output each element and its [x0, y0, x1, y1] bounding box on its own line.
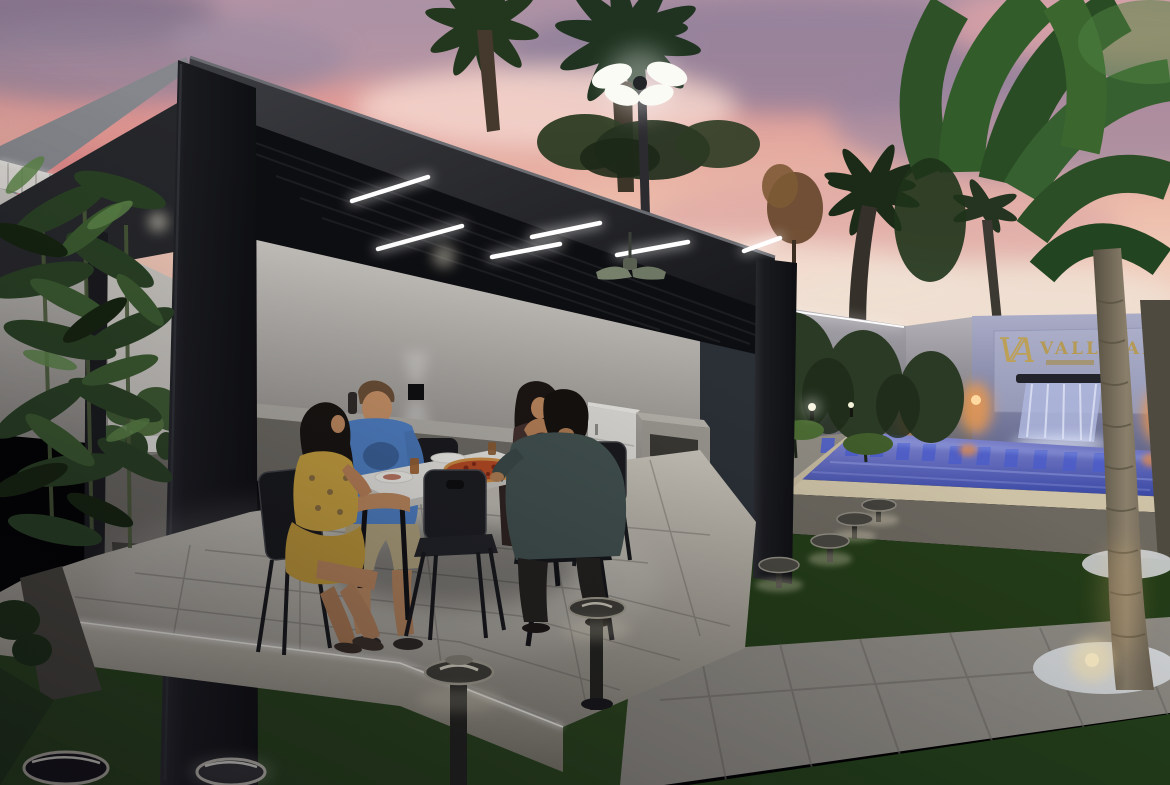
- rendered-scene: VA VALLE ALTO: [0, 0, 1170, 785]
- vignette-overlay: [0, 0, 1170, 785]
- scene-canvas: VA VALLE ALTO: [0, 0, 1170, 785]
